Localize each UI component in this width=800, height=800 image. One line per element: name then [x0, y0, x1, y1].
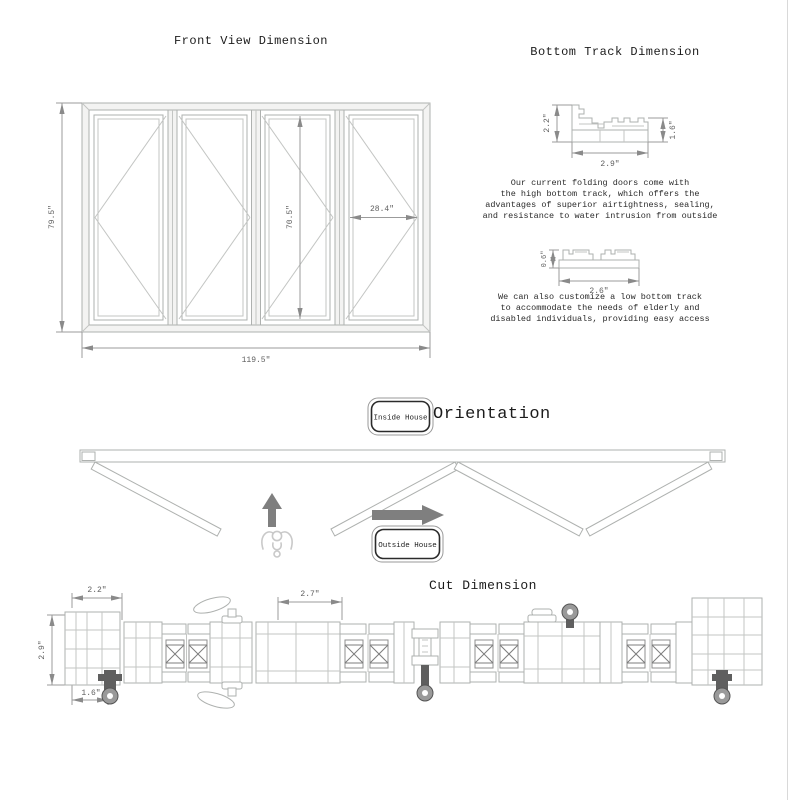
outside-house-badge: Outside House	[372, 526, 443, 562]
cut-dim-leaf-width: 2.7"	[278, 590, 342, 620]
lever-handle-top-icon	[192, 594, 242, 623]
plan-leaf-2	[331, 462, 459, 536]
cut-section-drawing: 2.2" 2.7" 2.9" 1.6"	[40, 572, 770, 727]
note-line: disabled individuals, providing easy acc…	[450, 314, 750, 325]
front-view-drawing: 79.5" 119.5" 70.5" 28.4"	[40, 90, 460, 375]
bottom-track-title: Bottom Track Dimension	[465, 45, 765, 59]
cut-interlock	[470, 624, 524, 682]
dim-high-track-width: 2.9"	[572, 142, 648, 169]
low-track-note: We can also customize a low bottom track…	[450, 292, 750, 325]
cut-roller-left	[98, 670, 122, 704]
note-line: and resistance to water intrusion from o…	[450, 211, 750, 222]
cut-interlock	[340, 624, 394, 682]
dim-high-track-right: 1.6"	[648, 118, 678, 142]
low-track-profile	[559, 250, 639, 268]
low-track-drawing: 0.6" 2.6"	[545, 240, 675, 298]
dim-low-track-height: 0.6"	[541, 250, 559, 268]
dim-leaf-width-label: 28.4"	[370, 205, 394, 214]
dim-overall-width-label: 119.5"	[242, 356, 271, 365]
cut-mid-pivot	[412, 629, 438, 701]
sheet-border-right	[787, 0, 788, 800]
high-track-profile	[572, 105, 648, 142]
cut-stile	[394, 622, 414, 683]
note-line: advantages of superior airtightness, sea…	[450, 200, 750, 211]
high-track-note: Our current folding doors come with the …	[450, 178, 750, 222]
cut-dim-bottom-label: 1.6"	[81, 689, 100, 698]
dim-overall-height: 79.5"	[48, 103, 82, 332]
plan-leaf-4	[586, 462, 712, 536]
orientation-plan-drawing: Inside House	[55, 393, 765, 573]
dim-leaf-height-label: 70.5"	[286, 205, 295, 229]
cut-leaf	[256, 622, 340, 683]
inside-house-label: Inside House	[373, 415, 427, 423]
high-track-drawing: 2.2" 1.6" 2.9"	[540, 92, 690, 182]
plan-leaf-3	[454, 462, 583, 536]
outside-house-label: Outside House	[378, 542, 437, 550]
cut-leaf	[440, 622, 470, 683]
note-line: Our current folding doors come with	[450, 178, 750, 189]
dim-high-track-left: 2.2"	[543, 105, 572, 142]
person-icon	[262, 531, 292, 557]
dim-high-right-label: 1.6"	[669, 120, 678, 139]
plan-door-leaves	[91, 462, 712, 536]
cut-stile	[124, 622, 162, 683]
lever-handle-bottom-icon	[196, 682, 242, 711]
cut-interlock	[162, 624, 210, 682]
inward-arrow-icon	[262, 493, 282, 527]
front-view-title: Front View Dimension	[101, 34, 401, 48]
inside-house-badge: Inside House	[368, 398, 433, 435]
cut-roller-right	[712, 670, 732, 704]
dim-high-width-label: 2.9"	[600, 160, 619, 169]
note-line: the high bottom track, which offers the	[450, 189, 750, 200]
cut-dim-depth-label: 2.9"	[38, 640, 47, 659]
cut-leaf-flush-handle	[524, 604, 600, 683]
dim-low-height-label: 0.6"	[541, 251, 549, 268]
dim-overall-width: 119.5"	[82, 332, 430, 365]
cut-interlock	[622, 624, 676, 682]
cut-dim-leaf-width-label: 2.7"	[300, 590, 319, 599]
note-line: to accommodate the needs of elderly and	[450, 303, 750, 314]
cut-dim-depth: 2.9"	[38, 615, 65, 685]
cut-stile	[676, 622, 692, 683]
cut-dim-jamb-width-label: 2.2"	[87, 586, 106, 595]
dim-high-left-label: 2.2"	[543, 113, 552, 132]
cut-stile	[600, 622, 622, 683]
plan-track	[80, 450, 725, 462]
note-line: We can also customize a low bottom track	[450, 292, 750, 303]
flush-handle-icon	[528, 609, 556, 622]
dim-overall-height-label: 79.5"	[48, 205, 57, 229]
plan-leaf-1	[91, 462, 221, 536]
drawing-sheet: Front View Dimension	[0, 0, 800, 800]
